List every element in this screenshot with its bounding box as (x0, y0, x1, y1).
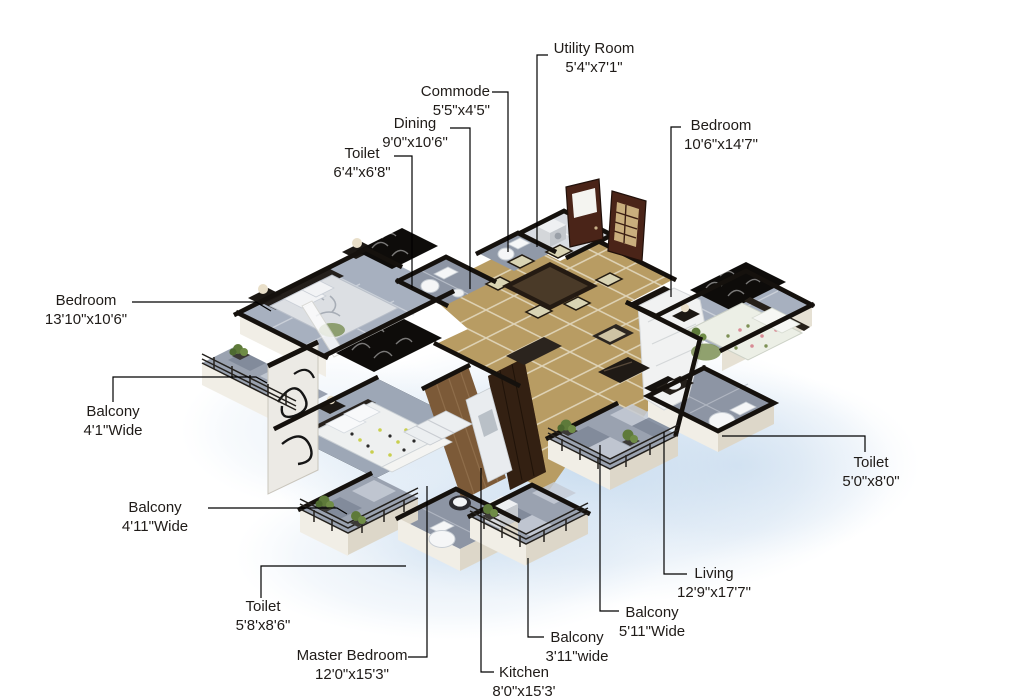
room-label-master-bedroom: Master Bedroom 12'0"x15'3" (290, 647, 414, 684)
room-name: Toilet (814, 454, 928, 473)
room-size: 13'10"x10'6" (30, 311, 142, 330)
room-label-balcony-master: Balcony 4'11"Wide (98, 499, 212, 536)
room-name: Utility Room (538, 40, 650, 59)
room-label-balcony-left: Balcony 4'1"Wide (57, 403, 169, 440)
floor-plan-rendering (0, 0, 1024, 700)
room-size: 5'4"x7'1" (538, 59, 650, 78)
room-name: Master Bedroom (290, 647, 414, 666)
room-size: 8'0"x15'3' (467, 683, 581, 700)
room-name: Kitchen (467, 664, 581, 683)
room-label-toilet-master: Toilet 5'8'x8'6" (207, 598, 319, 635)
room-label-living: Living 12'9"x17'7" (658, 565, 770, 602)
room-label-toilet-right: Toilet 5'0"x8'0" (814, 454, 928, 491)
leader-commode (492, 92, 508, 252)
room-label-balcony-living: Balcony 5'11"Wide (596, 604, 708, 641)
room-label-utility: Utility Room 5'4"x7'1" (538, 40, 650, 77)
room-size: 5'11"Wide (596, 623, 708, 642)
room-label-kitchen: Kitchen 8'0"x15'3' (467, 664, 581, 700)
room-size: 6'4"x6'8" (306, 164, 418, 183)
room-name: Toilet (306, 145, 418, 164)
room-label-bedroom-right: Bedroom 10'6"x14'7" (665, 117, 777, 154)
room-size: 5'8'x8'6" (207, 617, 319, 636)
room-size: 3'11"wide (520, 648, 634, 667)
room-name: Commode (388, 83, 490, 102)
room-name: Balcony (98, 499, 212, 518)
room-size: 12'0"x15'3" (290, 666, 414, 685)
floor-plan-page: Utility Room 5'4"x7'1" Commode 5'5"x4'5"… (0, 0, 1024, 700)
room-name: Dining (359, 115, 471, 134)
room-size: 10'6"x14'7" (665, 136, 777, 155)
room-size: 5'0"x8'0" (814, 473, 928, 492)
room-label-bedroom-left: Bedroom 13'10"x10'6" (30, 292, 142, 329)
room-size: 4'11"Wide (98, 518, 212, 537)
room-name: Bedroom (665, 117, 777, 136)
room-label-toilet-top: Toilet 6'4"x6'8" (306, 145, 418, 182)
room-size: 4'1"Wide (57, 422, 169, 441)
room-size: 12'9"x17'7" (658, 584, 770, 603)
room-name: Bedroom (30, 292, 142, 311)
room-name: Living (658, 565, 770, 584)
room-name: Toilet (207, 598, 319, 617)
room-name: Balcony (57, 403, 169, 422)
room-name: Balcony (596, 604, 708, 623)
